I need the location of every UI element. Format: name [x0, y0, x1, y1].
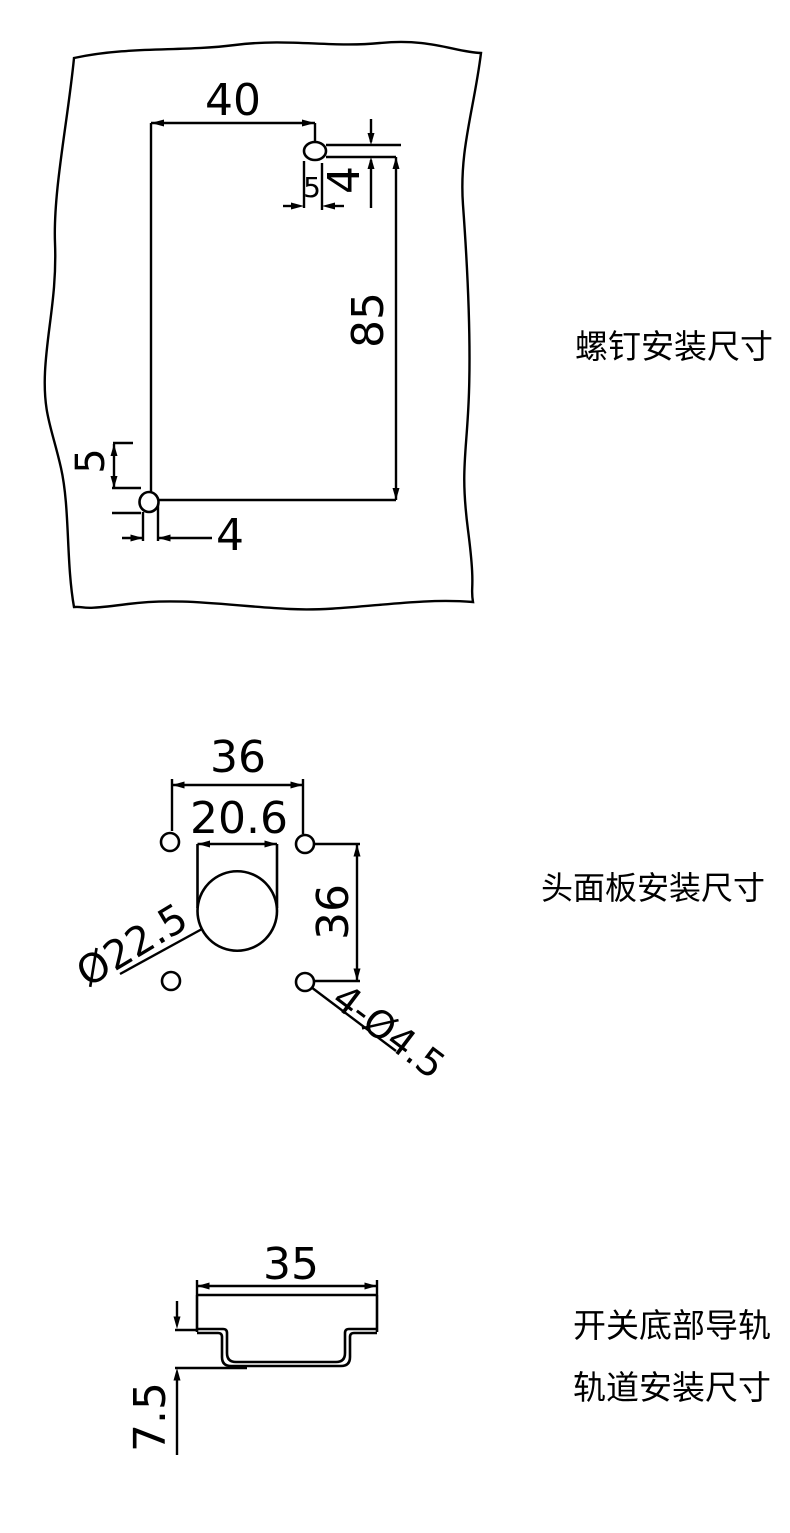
dim-20-6: 20.6 [190, 793, 288, 844]
face-panel-diagram: 36 20.6 36 Ø22.5 4-Ø4.5 头面板安装尺寸 [69, 732, 765, 1088]
dim-bottom-4: 4 [216, 510, 244, 561]
screw-mount-diagram: 40 5 4 85 5 4 螺钉安装尺寸 [45, 42, 773, 609]
dim-36-horizontal: 36 [210, 732, 266, 783]
hole-bottom-right [296, 973, 314, 991]
dim-top-4: 4 [319, 166, 370, 194]
dim-35: 35 [263, 1239, 319, 1290]
dim-85: 85 [343, 292, 394, 348]
rail-profile [197, 1295, 377, 1366]
rail-dimension-lines [174, 1280, 378, 1455]
hole-top-right [296, 835, 314, 853]
dim-4-holes: 4-Ø4.5 [324, 975, 453, 1087]
dim-40: 40 [205, 75, 261, 126]
bottom-left-screw-hole [140, 492, 159, 512]
drawing-canvas: 40 5 4 85 5 4 螺钉安装尺寸 [0, 0, 790, 1533]
panel-outline [45, 42, 481, 609]
keyhole-cutout [198, 844, 278, 951]
screw-mount-caption: 螺钉安装尺寸 [575, 327, 773, 366]
technical-drawing-page: 40 5 4 85 5 4 螺钉安装尺寸 [0, 0, 790, 1533]
rail-caption-line1: 开关底部导轨 [573, 1306, 771, 1345]
dim-36-vertical: 36 [308, 884, 359, 940]
face-panel-caption: 头面板安装尺寸 [541, 869, 765, 907]
dim-bottom-5: 5 [68, 448, 114, 473]
dim-7-5: 7.5 [125, 1382, 176, 1452]
rail-diagram: 35 7.5 开关底部导轨 轨道安装尺寸 [125, 1239, 771, 1455]
hole-top-left [161, 833, 179, 851]
top-right-screw-hole [304, 142, 326, 160]
hole-bottom-left [162, 972, 180, 990]
rail-caption-line2: 轨道安装尺寸 [573, 1368, 771, 1407]
